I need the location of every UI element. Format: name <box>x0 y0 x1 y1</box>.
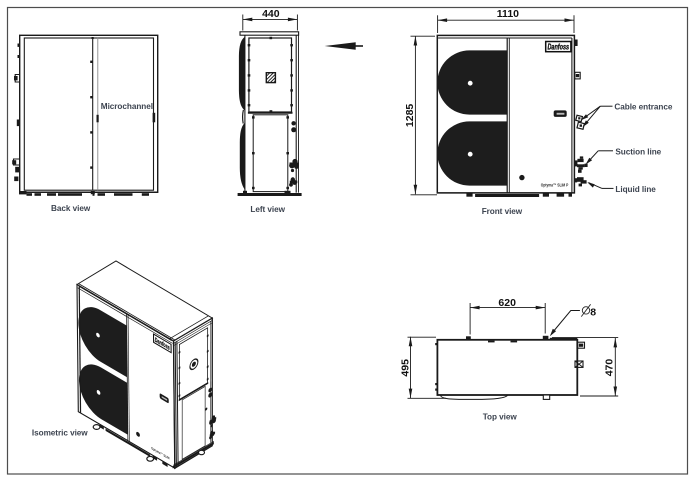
svg-text:Suction line: Suction line <box>615 147 661 156</box>
svg-text:470: 470 <box>604 359 616 377</box>
svg-text:1285: 1285 <box>404 104 416 128</box>
svg-text:Back view: Back view <box>51 204 91 213</box>
svg-text:Isometric view: Isometric view <box>32 429 88 438</box>
svg-text:Top view: Top view <box>483 412 518 421</box>
svg-text:440: 440 <box>262 8 280 20</box>
svg-text:Microchannel: Microchannel <box>101 102 153 111</box>
svg-text:Optyma™ SLIM P: Optyma™ SLIM P <box>541 182 569 187</box>
svg-text:Cable entrance: Cable entrance <box>614 103 672 112</box>
svg-text:1110: 1110 <box>497 8 519 20</box>
svg-text:Front view: Front view <box>482 207 523 216</box>
svg-text:Left view: Left view <box>250 205 285 214</box>
svg-text:Danfoss: Danfoss <box>548 43 570 52</box>
svg-text:Liquid line: Liquid line <box>615 185 656 194</box>
svg-text:8: 8 <box>590 306 596 318</box>
svg-text:495: 495 <box>399 359 411 377</box>
